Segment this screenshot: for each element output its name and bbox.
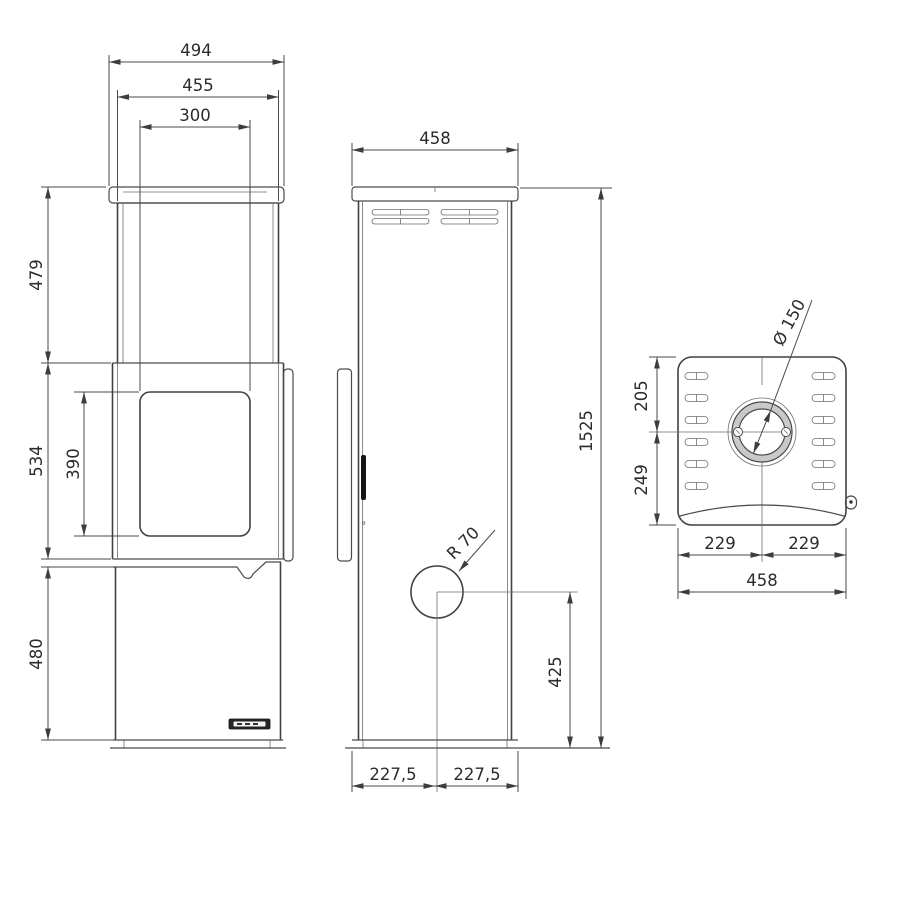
side-lock-dot: [362, 522, 365, 525]
front-lower-body: [110, 562, 286, 748]
side-top-cap: [352, 187, 518, 201]
top-vent-slots-right: [812, 373, 835, 490]
dim-top-left-half: 229: [704, 534, 736, 553]
top-view: Ø 150 205 249 229 229 458: [632, 296, 857, 599]
door-glass-window: [140, 392, 250, 536]
dim-side-front-half: 227,5: [369, 765, 416, 784]
stove-dimension-drawing: 494 455 300 479 534 390: [0, 0, 900, 900]
front-door-section: [113, 363, 294, 578]
dim-front-body-width: 455: [182, 76, 214, 95]
dim-top-total-width: 458: [746, 571, 778, 590]
front-dimensions: 494 455 300 479 534 390: [27, 41, 284, 740]
side-view: 458 1525 425 R 70 227,5 227,5: [338, 129, 613, 792]
dim-side-rear-half: 227,5: [453, 765, 500, 784]
side-door-front-strip: [338, 369, 352, 561]
top-vent-slots-left: [685, 373, 708, 490]
dim-side-flue-radius: R 70: [443, 523, 483, 563]
dim-top-right-half: 229: [788, 534, 820, 553]
top-air-intake-tab: [846, 496, 857, 509]
side-dimensions: 458 1525 425 R 70 227,5 227,5: [352, 129, 612, 792]
front-upper-body: [118, 203, 279, 363]
side-vent-slots: [372, 210, 498, 225]
dim-front-window-height: 390: [64, 448, 83, 480]
dim-side-total-height: 1525: [577, 410, 596, 452]
technical-drawing-page: 494 455 300 479 534 390: [0, 0, 900, 900]
door-handle: [113, 562, 281, 578]
dim-front-lower-height: 480: [27, 638, 46, 670]
dim-front-upper-height: 479: [27, 259, 46, 291]
dim-front-cap-width: 494: [180, 41, 212, 60]
door-hinge-strip: [284, 369, 294, 561]
side-door-handle: [361, 455, 366, 500]
front-top-cap: [109, 187, 284, 203]
dim-side-flue-height: 425: [546, 656, 565, 688]
dim-front-window-width: 300: [179, 106, 211, 125]
side-body: [359, 201, 512, 740]
brand-logo-badge: [229, 719, 270, 729]
dim-top-rear-section: 205: [632, 380, 651, 412]
front-view: 494 455 300 479 534 390: [27, 41, 293, 748]
dim-front-middle-height: 534: [27, 445, 46, 477]
dim-top-front-section: 249: [632, 464, 651, 496]
dim-side-depth: 458: [419, 129, 451, 148]
